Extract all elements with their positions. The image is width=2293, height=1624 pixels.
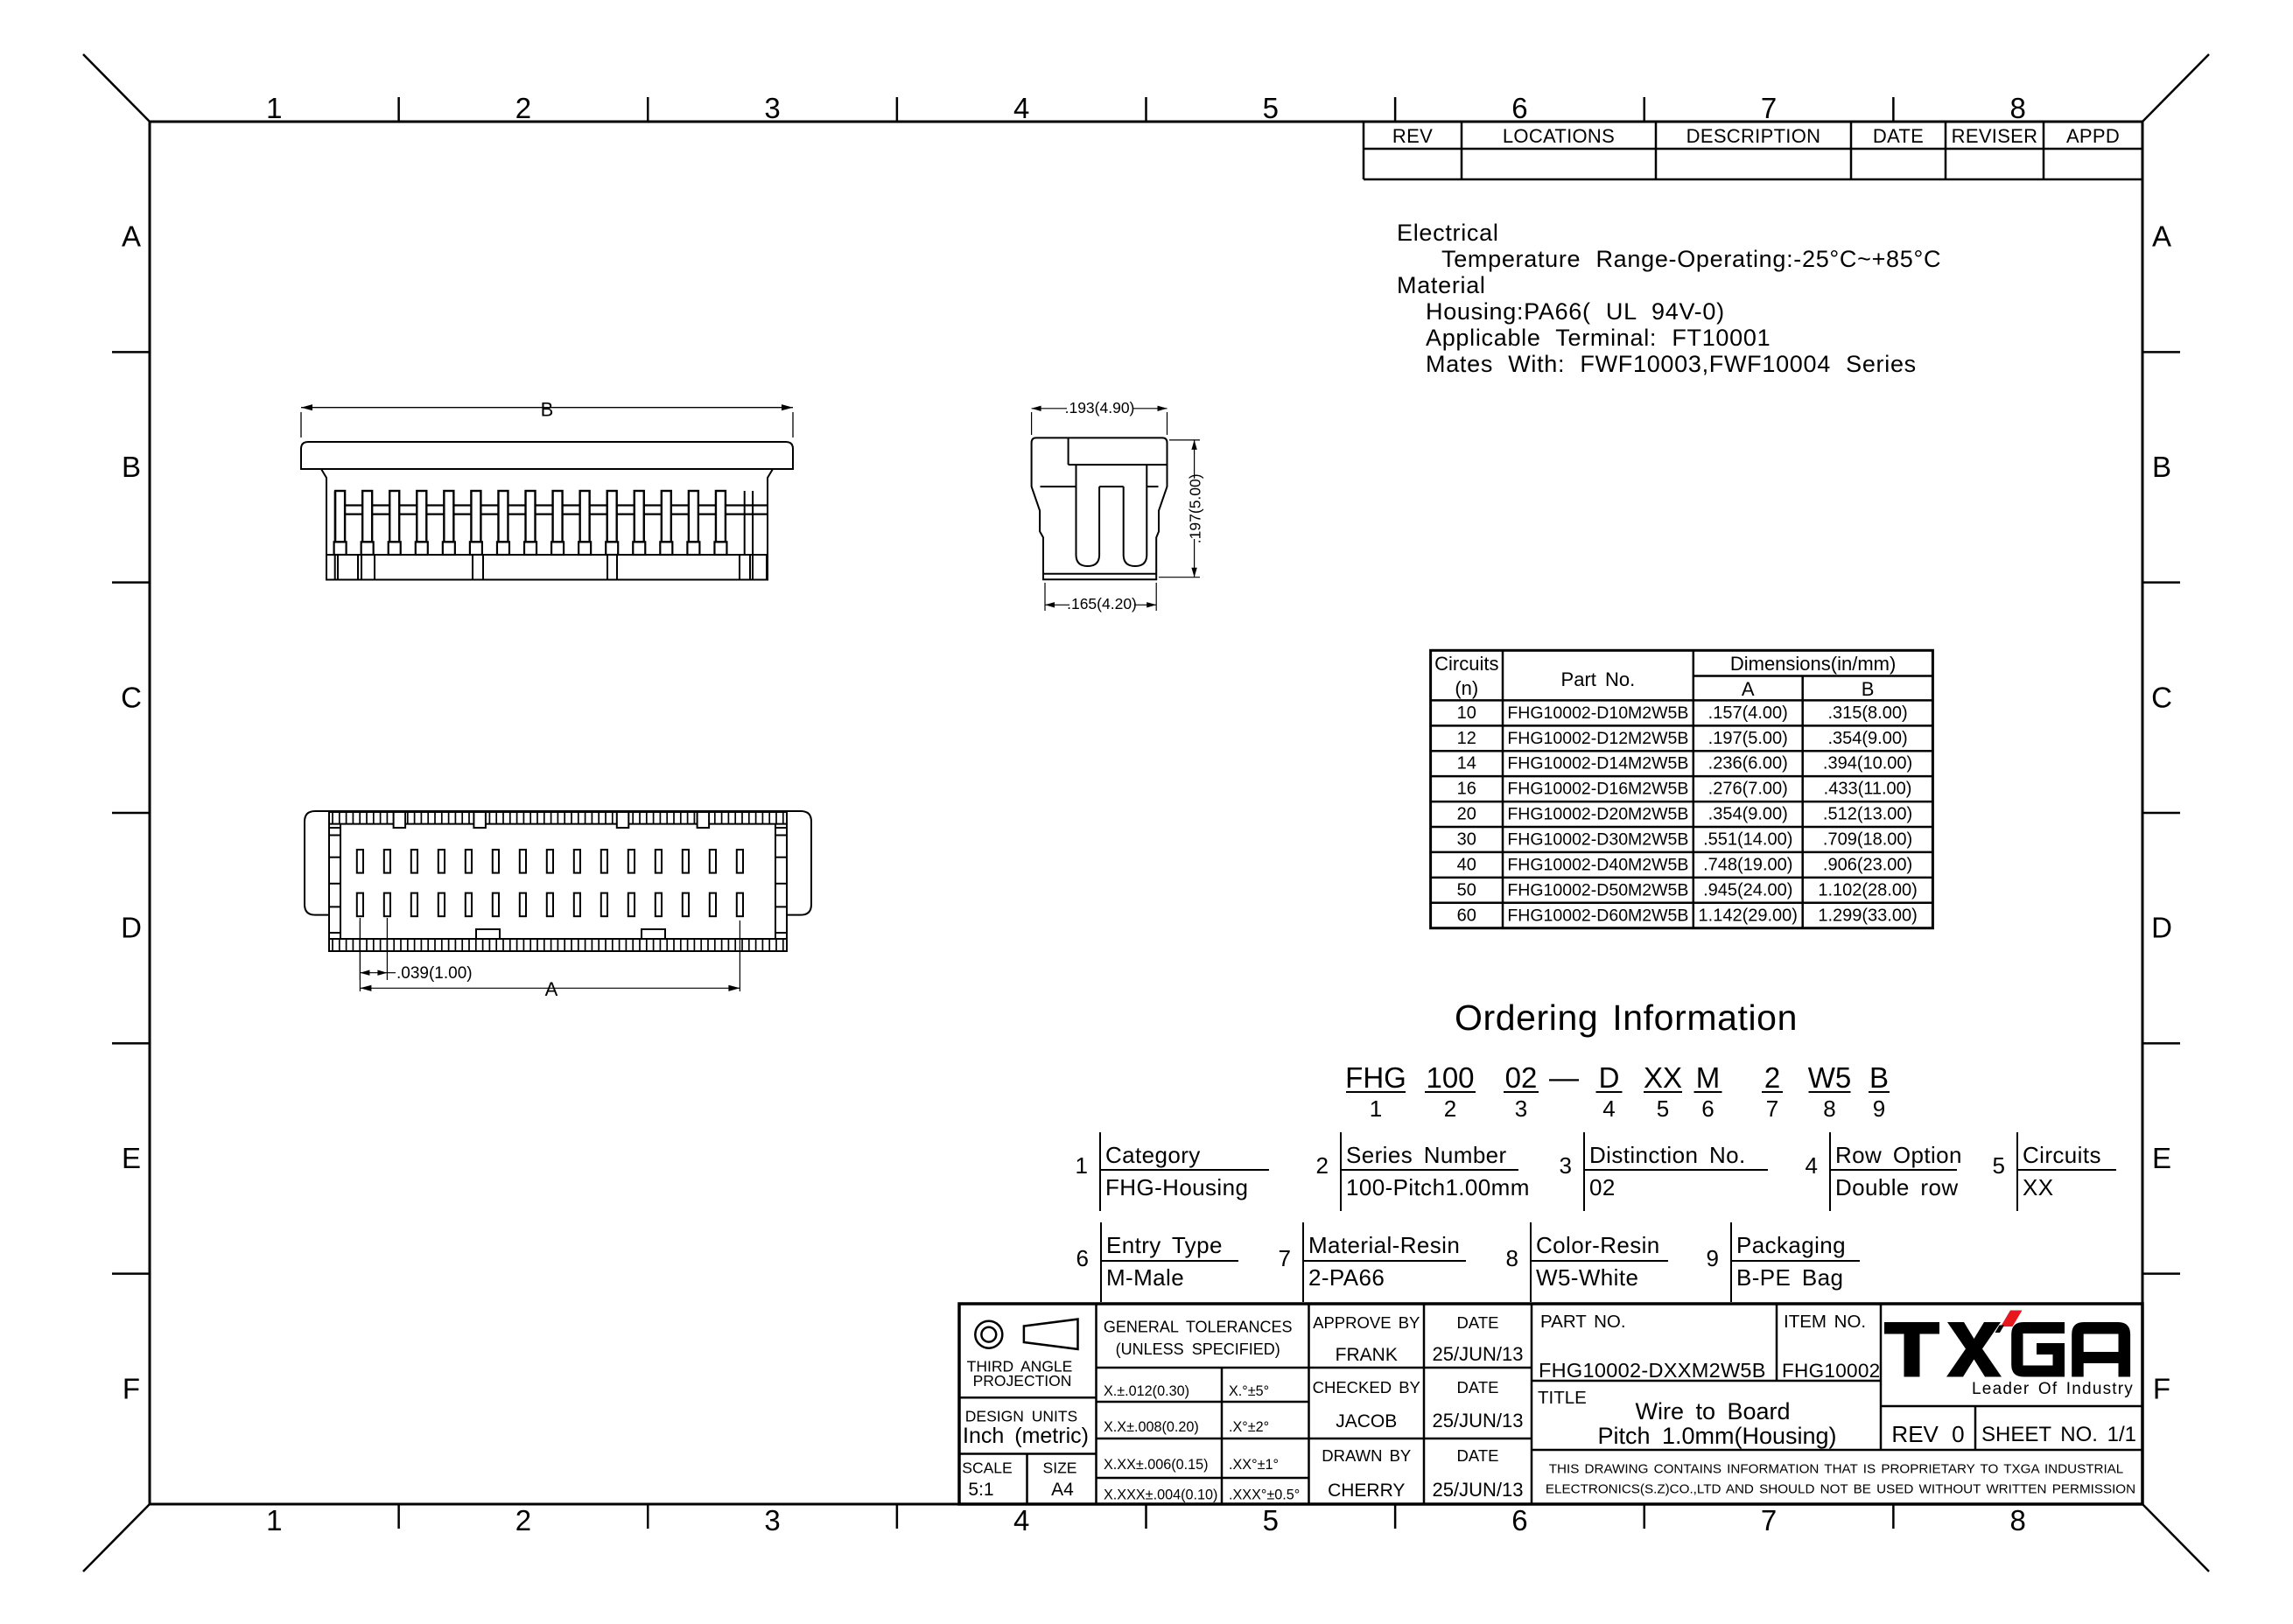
svg-text:8: 8 [1823,1095,1835,1122]
svg-text:PART NO.: PART NO. [1540,1312,1626,1332]
svg-text:Mates With: FWF10003,FWF10004: Mates With: FWF10003,FWF10004 Series [1426,351,1917,377]
svg-text:FHG10002: FHG10002 [1782,1360,1880,1382]
svg-text:FHG10002-D16M2W5B: FHG10002-D16M2W5B [1507,780,1688,799]
svg-text:.512(13.00): .512(13.00) [1823,805,1912,824]
svg-text:THIS DRAWING CONTAINS INFORMAT: THIS DRAWING CONTAINS INFORMATION THAT I… [1549,1462,2124,1477]
svg-text:DESIGN UNITS: DESIGN UNITS [965,1408,1077,1425]
svg-text:Double row: Double row [1835,1174,1959,1200]
svg-text:6: 6 [1511,92,1527,124]
svg-text:E: E [122,1142,141,1174]
svg-text:X.±.012(0.30): X.±.012(0.30) [1104,1383,1189,1399]
svg-text:SHEET NO. 1/1: SHEET NO. 1/1 [1981,1423,2136,1446]
svg-text:B-PE Bag: B-PE Bag [1736,1264,1843,1291]
svg-text:.276(7.00): .276(7.00) [1708,780,1788,799]
svg-text:APPROVE BY: APPROVE BY [1313,1313,1420,1332]
svg-text:4: 4 [1013,92,1029,124]
svg-text:Circuits: Circuits [2023,1142,2101,1168]
svg-text:3: 3 [764,92,780,124]
svg-text:.XX°±1°: .XX°±1° [1229,1457,1279,1473]
svg-text:3: 3 [764,1504,780,1536]
svg-text:25/JUN/13: 25/JUN/13 [1433,1343,1524,1365]
svg-text:5:1: 5:1 [968,1480,993,1500]
svg-text:.236(6.00): .236(6.00) [1708,754,1788,773]
svg-text:10: 10 [1457,703,1476,723]
svg-text:.709(18.00): .709(18.00) [1823,830,1912,850]
svg-text:Electrical: Electrical [1397,220,1499,246]
svg-text:SCALE: SCALE [962,1459,1012,1477]
svg-text:Part No.: Part No. [1561,668,1636,690]
svg-text:D: D [2151,912,2172,944]
svg-text:5: 5 [1657,1095,1669,1122]
svg-text:.165(4.20): .165(4.20) [1067,595,1137,612]
svg-text:2: 2 [1764,1061,1780,1094]
svg-text:5: 5 [1993,1152,2005,1179]
svg-text:100-Pitch1.00mm: 100-Pitch1.00mm [1346,1174,1530,1200]
svg-text:5: 5 [1263,92,1279,124]
svg-text:A: A [1742,678,1755,700]
svg-text:Material: Material [1397,272,1486,298]
svg-text:DATE: DATE [1457,1313,1499,1332]
svg-text:DRAWN BY: DRAWN BY [1322,1446,1411,1465]
svg-text:SIZE: SIZE [1043,1459,1077,1477]
svg-text:9: 9 [1873,1095,1885,1122]
svg-text:5: 5 [1263,1504,1279,1536]
svg-text:X.XX±.006(0.15): X.XX±.006(0.15) [1104,1457,1209,1473]
svg-text:7: 7 [1766,1095,1778,1122]
svg-text:ITEM NO.: ITEM NO. [1784,1312,1866,1332]
svg-text:DESCRIPTION: DESCRIPTION [1686,125,1821,147]
svg-text:.039(1.00): .039(1.00) [396,964,473,983]
svg-text:Series Number: Series Number [1346,1142,1507,1168]
svg-text:Color-Resin: Color-Resin [1536,1232,1660,1258]
svg-text:02: 02 [1589,1174,1616,1200]
svg-text:1: 1 [1076,1152,1088,1179]
svg-text:TITLE: TITLE [1538,1388,1587,1408]
svg-text:(n): (n) [1455,677,1478,699]
svg-text:M: M [1696,1061,1721,1094]
svg-text:XX: XX [2023,1174,2053,1200]
svg-text:Material-Resin: Material-Resin [1308,1232,1460,1258]
svg-text:A: A [122,220,141,253]
svg-text:6: 6 [1076,1245,1089,1271]
svg-text:CHERRY: CHERRY [1328,1480,1405,1501]
svg-text:W5: W5 [1808,1061,1852,1094]
svg-text:APPD: APPD [2066,125,2120,147]
svg-text:F: F [2153,1372,2170,1404]
svg-text:Leader Of Industry: Leader Of Industry [1972,1380,2134,1398]
svg-text:DATE: DATE [1457,1378,1499,1396]
svg-text:25/JUN/13: 25/JUN/13 [1433,1479,1524,1501]
svg-text:FHG10002-DXXM2W5B: FHG10002-DXXM2W5B [1539,1359,1766,1382]
svg-text:DATE: DATE [1457,1446,1499,1465]
svg-text:.X°±2°: .X°±2° [1229,1419,1269,1435]
svg-text:Circuits: Circuits [1434,653,1498,675]
svg-text:2: 2 [515,1504,531,1536]
svg-text:4: 4 [1013,1504,1029,1536]
svg-text:.157(4.00): .157(4.00) [1708,703,1788,723]
svg-text:Temperature Range-Operating:-2: Temperature Range-Operating:-25°C~+85°C [1441,246,1941,272]
svg-text:Pitch 1.0mm(Housing): Pitch 1.0mm(Housing) [1597,1423,1836,1449]
svg-text:B: B [122,451,141,483]
svg-text:D: D [1599,1061,1620,1094]
svg-text:6: 6 [1701,1095,1714,1122]
svg-text:ELECTRONICS(S.Z)CO.,LTD AND SH: ELECTRONICS(S.Z)CO.,LTD AND SHOULD NOT B… [1546,1482,2135,1497]
svg-text:CHECKED BY: CHECKED BY [1313,1378,1420,1396]
svg-text:.197(5.00): .197(5.00) [1187,473,1204,543]
svg-text:Distinction No.: Distinction No. [1589,1142,1746,1168]
svg-text:Inch (metric): Inch (metric) [963,1424,1089,1448]
svg-text:FHG10002-D60M2W5B: FHG10002-D60M2W5B [1507,906,1688,925]
svg-text:9: 9 [1707,1245,1719,1271]
svg-text:.197(5.00): .197(5.00) [1708,729,1788,748]
svg-text:60: 60 [1457,906,1476,925]
svg-text:Applicable Terminal: FT10001: Applicable Terminal: FT10001 [1426,325,1771,351]
svg-text:Category: Category [1105,1142,1201,1168]
svg-text:40: 40 [1457,855,1476,874]
svg-text:XX: XX [1644,1061,1682,1094]
svg-text:1: 1 [266,1504,282,1536]
svg-text:FHG10002-D40M2W5B: FHG10002-D40M2W5B [1507,855,1688,874]
svg-text:3: 3 [1560,1152,1572,1179]
svg-text:20: 20 [1457,805,1476,824]
svg-text:.193(4.90): .193(4.90) [1065,399,1135,416]
svg-text:8: 8 [2010,92,2026,124]
svg-text:M-Male: M-Male [1106,1264,1184,1291]
svg-text:C: C [121,681,142,713]
svg-text:(UNLESS SPECIFIED): (UNLESS SPECIFIED) [1116,1340,1280,1358]
svg-text:2: 2 [1316,1152,1329,1179]
svg-text:E: E [2152,1142,2171,1174]
svg-text:12: 12 [1457,729,1476,748]
svg-text:FRANK: FRANK [1336,1345,1398,1365]
svg-text:.354(9.00): .354(9.00) [1708,805,1788,824]
svg-text:FHG: FHG [1345,1061,1406,1094]
svg-text:25/JUN/13: 25/JUN/13 [1433,1410,1524,1431]
svg-text:JACOB: JACOB [1336,1411,1397,1431]
svg-text:2-PA66: 2-PA66 [1308,1264,1385,1291]
svg-text:A: A [545,978,558,1000]
svg-text:.945(24.00): .945(24.00) [1703,880,1792,899]
svg-text:Ordering Information: Ordering Information [1455,997,1798,1038]
svg-text:.XXX°±0.5°: .XXX°±0.5° [1229,1487,1300,1503]
svg-text:DATE: DATE [1873,125,1924,147]
svg-text:7: 7 [1761,1504,1777,1536]
svg-text:Housing:PA66( UL 94V-0): Housing:PA66( UL 94V-0) [1426,298,1725,325]
svg-text:A: A [2152,220,2171,253]
svg-text:02: 02 [1505,1061,1538,1094]
svg-text:Packaging: Packaging [1736,1232,1846,1258]
svg-text:X.°±5°: X.°±5° [1229,1383,1269,1399]
svg-text:.433(11.00): .433(11.00) [1824,780,1912,799]
svg-text:PROJECTION: PROJECTION [973,1372,1072,1389]
svg-text:GENERAL TOLERANCES: GENERAL TOLERANCES [1104,1319,1293,1336]
svg-text:F: F [123,1372,140,1404]
svg-text:7: 7 [1279,1245,1291,1271]
svg-text:A4: A4 [1051,1480,1074,1500]
svg-text:6: 6 [1511,1504,1527,1536]
svg-text:1: 1 [1370,1095,1382,1122]
svg-text:FHG10002-D50M2W5B: FHG10002-D50M2W5B [1507,880,1688,899]
svg-text:FHG10002-D20M2W5B: FHG10002-D20M2W5B [1507,805,1688,824]
svg-text:Entry Type: Entry Type [1106,1232,1223,1258]
svg-text:X.X±.008(0.20): X.X±.008(0.20) [1104,1419,1199,1435]
svg-text:FHG10002-D10M2W5B: FHG10002-D10M2W5B [1507,703,1688,723]
svg-text:.551(14.00): .551(14.00) [1703,830,1792,850]
svg-text:4: 4 [1806,1152,1818,1179]
svg-text:W5-White: W5-White [1536,1264,1638,1291]
svg-text:8: 8 [1506,1245,1518,1271]
svg-text:—: — [1549,1061,1579,1095]
svg-text:1.299(33.00): 1.299(33.00) [1818,906,1917,925]
svg-text:8: 8 [2010,1504,2026,1536]
svg-text:B: B [2152,451,2171,483]
svg-text:Wire to Board: Wire to Board [1635,1398,1790,1424]
svg-text:2: 2 [1444,1095,1456,1122]
svg-text:3: 3 [1515,1095,1527,1122]
svg-text:D: D [121,912,142,944]
svg-text:Dimensions(in/mm): Dimensions(in/mm) [1730,653,1896,675]
svg-text:14: 14 [1457,754,1476,773]
svg-text:100: 100 [1426,1061,1474,1094]
svg-text:REV: REV [1392,125,1433,147]
svg-text:2: 2 [515,92,531,124]
svg-text:7: 7 [1761,92,1777,124]
svg-text:B: B [1869,1061,1889,1094]
svg-text:16: 16 [1457,780,1476,799]
svg-text:1.102(28.00): 1.102(28.00) [1818,880,1917,899]
svg-text:FHG10002-D14M2W5B: FHG10002-D14M2W5B [1507,754,1688,773]
svg-text:.354(9.00): .354(9.00) [1827,729,1907,748]
svg-text:FHG-Housing: FHG-Housing [1105,1174,1248,1200]
svg-text:B: B [1862,678,1875,700]
svg-text:X.XXX±.004(0.10): X.XXX±.004(0.10) [1104,1487,1217,1503]
svg-text:4: 4 [1602,1095,1615,1122]
svg-text:Row Option: Row Option [1835,1142,1962,1168]
svg-text:50: 50 [1457,880,1476,899]
svg-text:FHG10002-D12M2W5B: FHG10002-D12M2W5B [1507,729,1688,748]
svg-text:FHG10002-D30M2W5B: FHG10002-D30M2W5B [1507,830,1688,850]
svg-text:.906(23.00): .906(23.00) [1823,855,1912,874]
svg-text:REVISER: REVISER [1952,125,2038,147]
svg-text:REV 0: REV 0 [1891,1421,1964,1447]
svg-text:.315(8.00): .315(8.00) [1827,703,1907,723]
svg-text:1: 1 [266,92,282,124]
svg-text:.394(10.00): .394(10.00) [1823,754,1912,773]
svg-text:LOCATIONS: LOCATIONS [1503,125,1615,147]
svg-text:.748(19.00): .748(19.00) [1703,855,1792,874]
svg-text:30: 30 [1457,830,1476,850]
svg-text:1.142(29.00): 1.142(29.00) [1699,906,1798,925]
svg-text:B: B [541,399,554,421]
svg-text:C: C [2151,681,2172,713]
